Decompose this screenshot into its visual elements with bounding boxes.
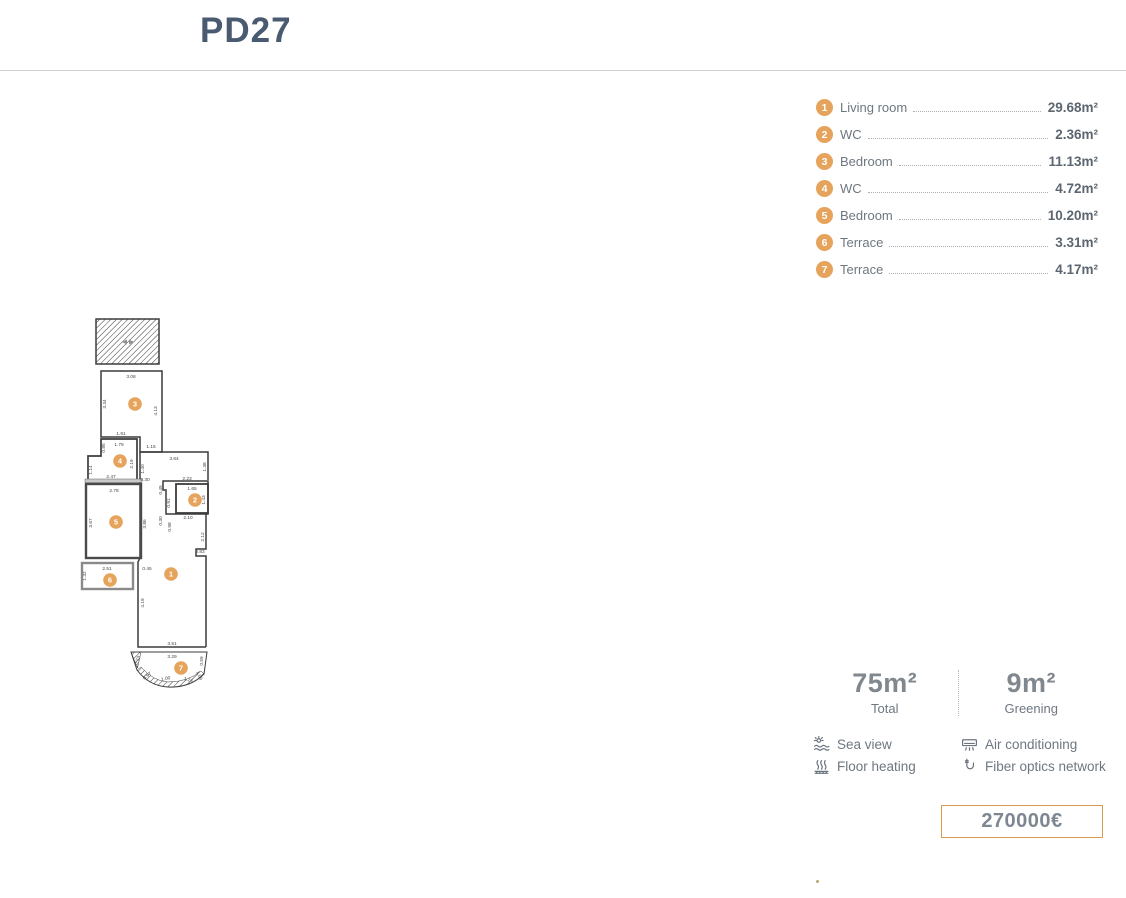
dimension-label: 3.64 <box>169 456 179 462</box>
dimension-label: 2.10 <box>183 515 193 521</box>
dimension-label: 0.45 <box>142 566 152 572</box>
feature-item: Floor heating <box>813 755 916 777</box>
dimension-label: 1.15 <box>146 444 156 450</box>
room-number-badge: 7 <box>816 261 833 278</box>
dimension-label: 0.30 <box>158 516 164 526</box>
room-number-badge: 5 <box>816 207 833 224</box>
feature-label: Fiber optics network <box>985 759 1106 774</box>
legend-room-label: Bedroom <box>840 208 893 223</box>
dotted-leader <box>889 273 1048 274</box>
dimension-label: 2.78 <box>109 488 119 494</box>
legend-room-area: 3.31m² <box>1055 235 1098 250</box>
air-conditioning-icon <box>961 736 978 753</box>
room-number-marker: 2 <box>188 493 202 507</box>
floor-heating-icon <box>813 758 830 775</box>
feature-item: Sea view <box>813 733 916 755</box>
dotted-leader <box>868 192 1049 193</box>
svg-text:1: 1 <box>169 570 173 579</box>
sea-view-icon <box>813 736 830 753</box>
room-number-badge: 4 <box>816 180 833 197</box>
fiber-optics-icon <box>961 758 978 775</box>
room-number-badge: 3 <box>816 153 833 170</box>
legend-room-label: Bedroom <box>840 154 893 169</box>
summary-totals: 75m² Total 9m² Greening <box>812 668 1104 716</box>
svg-text:7: 7 <box>179 664 183 673</box>
svg-text:2: 2 <box>193 496 197 505</box>
dimension-label: 3.08 <box>126 374 136 380</box>
room-number-badge: 1 <box>816 99 833 116</box>
legend-item: 1Living room29.68m² <box>816 94 1098 121</box>
legend-room-label: Terrace <box>840 262 883 277</box>
dimension-label: 1.91 <box>116 431 126 437</box>
legend-room-label: WC <box>840 127 862 142</box>
legend-item: 7Terrace4.17m² <box>816 256 1098 283</box>
room-number-marker: 4 <box>113 454 127 468</box>
dotted-leader <box>889 246 1048 247</box>
dimension-label: 0.85 <box>101 443 107 453</box>
dimension-label: 1.43 <box>201 495 207 505</box>
dimension-label: 0.83 <box>195 549 205 555</box>
dimension-label: 0.98 <box>167 522 173 532</box>
dimension-label: 2.51 <box>102 566 112 572</box>
legend-room-area: 4.17m² <box>1055 262 1098 277</box>
dimension-label: 1.65 <box>187 486 197 492</box>
legend-room-area: 4.72m² <box>1055 181 1098 196</box>
dimension-label: 4.13 <box>153 406 159 416</box>
dimension-label: 2.19 <box>129 459 135 469</box>
page-title: PD27 <box>200 11 292 51</box>
legend-room-label: Terrace <box>840 235 883 250</box>
dimension-label: 2.23 <box>182 476 192 482</box>
price-value: 270000€ <box>981 810 1062 833</box>
room-number-badge: 6 <box>816 234 833 251</box>
greening-area: 9m² Greening <box>959 668 1105 716</box>
dotted-leader <box>899 165 1042 166</box>
dimension-label: 3.67 <box>88 518 94 528</box>
dimension-label: 0.45 <box>158 485 164 495</box>
stray-mark <box>816 880 819 883</box>
legend-item: 4WC4.72m² <box>816 175 1098 202</box>
legend-room-area: 2.36m² <box>1055 127 1098 142</box>
dimension-label: 0.30 <box>140 477 150 483</box>
legend-room-area: 29.68m² <box>1048 100 1098 115</box>
room-number-marker: 7 <box>174 661 188 675</box>
legend-item: 6Terrace3.31m² <box>816 229 1098 256</box>
dotted-leader <box>899 219 1041 220</box>
dimension-label: 4.19 <box>140 598 146 608</box>
features-column-left: Sea viewFloor heating <box>813 733 916 777</box>
floor-plan: 3.083.344.131.911.790.851.152.191.142.47… <box>78 310 246 702</box>
total-area: 75m² Total <box>812 668 958 716</box>
dimension-label: 1.79 <box>114 442 124 448</box>
dimension-label: 3.29 <box>167 654 177 660</box>
room-number-badge: 2 <box>816 126 833 143</box>
legend-room-area: 10.20m² <box>1048 208 1098 223</box>
legend-room-area: 11.13m² <box>1048 154 1098 169</box>
total-area-value: 75m² <box>812 668 958 699</box>
svg-text:3: 3 <box>133 400 137 409</box>
legend-item: 3Bedroom11.13m² <box>816 148 1098 175</box>
header: PD27 <box>0 0 1126 71</box>
dimension-label: 1.32 <box>82 571 88 581</box>
svg-text:5: 5 <box>114 518 118 527</box>
feature-item: Air conditioning <box>961 733 1106 755</box>
dimension-label: 2.12 <box>200 532 206 542</box>
feature-label: Sea view <box>837 737 892 752</box>
dimension-label: 0.91 <box>166 498 172 508</box>
room-number-marker: 5 <box>109 515 123 529</box>
shaft-hatched-area <box>96 319 159 364</box>
feature-label: Air conditioning <box>985 737 1077 752</box>
room-number-marker: 3 <box>128 397 142 411</box>
dimension-label: 0.59 <box>199 656 205 666</box>
legend-item: 5Bedroom10.20m² <box>816 202 1098 229</box>
dimension-label: 3.86 <box>142 519 148 529</box>
legend-item: 2WC2.36m² <box>816 121 1098 148</box>
greening-area-value: 9m² <box>959 668 1105 699</box>
total-area-label: Total <box>812 701 958 716</box>
legend-room-label: Living room <box>840 100 907 115</box>
feature-item: Fiber optics network <box>961 755 1106 777</box>
dimension-label: 3.34 <box>102 399 108 409</box>
room-legend: 1Living room29.68m²2WC2.36m²3Bedroom11.1… <box>816 94 1098 283</box>
dimension-label: 1.38 <box>202 462 208 472</box>
price-button[interactable]: 270000€ <box>941 805 1103 838</box>
dimension-label: 1.14 <box>88 465 94 475</box>
dimension-label: 2.47 <box>106 474 116 480</box>
svg-text:6: 6 <box>108 576 112 585</box>
dotted-leader <box>868 138 1049 139</box>
greening-area-label: Greening <box>959 701 1105 716</box>
dimension-label: 1.40 <box>140 464 146 474</box>
dimension-label: 3.51 <box>167 641 177 647</box>
features-column-right: Air conditioningFiber optics network <box>961 733 1106 777</box>
legend-room-label: WC <box>840 181 862 196</box>
feature-label: Floor heating <box>837 759 916 774</box>
room-number-marker: 1 <box>164 567 178 581</box>
room-number-marker: 6 <box>103 573 117 587</box>
dotted-leader <box>913 111 1041 112</box>
